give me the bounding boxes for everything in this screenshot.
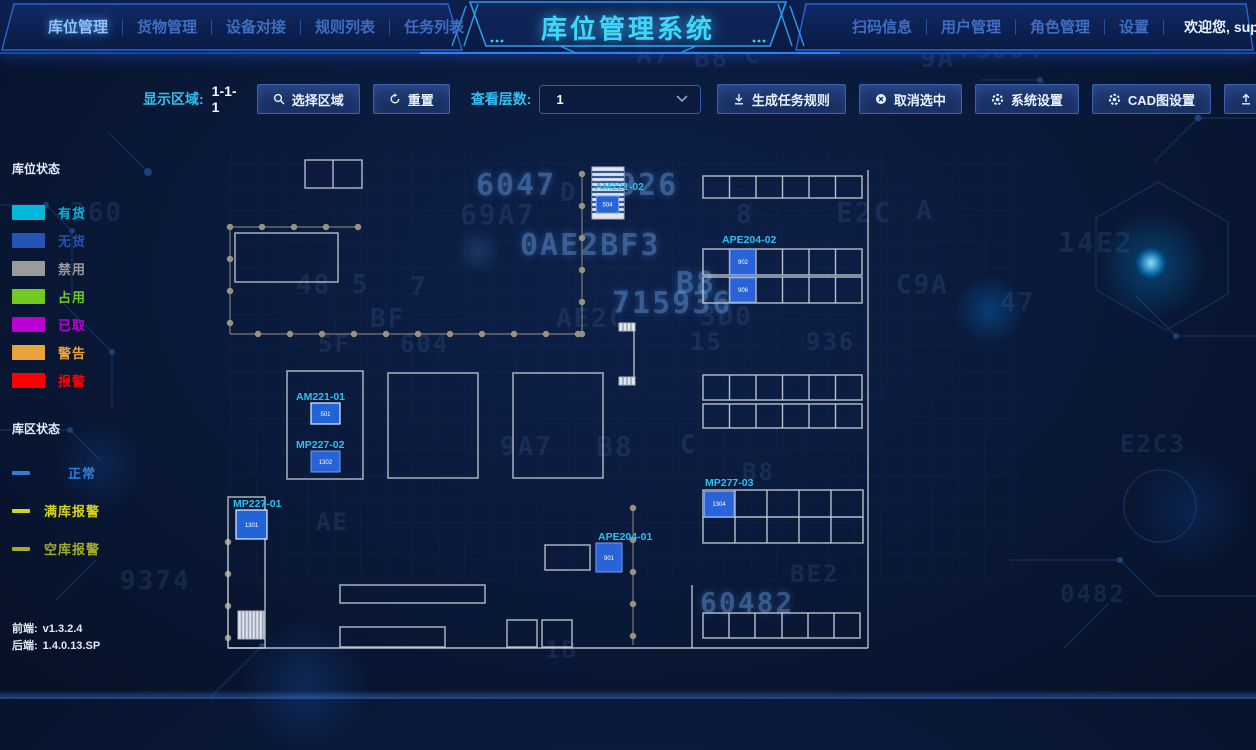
legend-label: 禁用	[58, 259, 86, 278]
right-nav: 扫码信息 用户管理 角色管理 设置 欢迎您, super	[838, 16, 1256, 37]
nav-item-task-list[interactable]: 任务列表	[390, 16, 478, 37]
left-nav: 库位管理 货物管理 设备对接 规则列表 任务列表	[34, 16, 478, 37]
legend-label: 警告	[58, 343, 86, 362]
area-label-am221-01: AM221-01	[296, 391, 345, 403]
nav-item-rule-list[interactable]: 规则列表	[301, 16, 389, 37]
legend-item-full-alarm: 满库报警	[12, 501, 100, 520]
legend-label: 满库报警	[44, 501, 100, 520]
frontend-version-value: v1.3.2.4	[43, 623, 83, 635]
user-menu[interactable]: 欢迎您, super	[1184, 17, 1256, 37]
cancel-selection-button[interactable]: 取消选中	[859, 84, 962, 114]
legend-item-empty-alarm: 空库报警	[12, 539, 100, 558]
slot-cell-number: 1304	[712, 502, 726, 508]
nav-item-device-link[interactable]: 设备对接	[212, 16, 300, 37]
generate-task-rule-label: 生成任务规则	[752, 90, 830, 109]
backend-version: 后端:1.4.0.13.SP	[12, 638, 100, 655]
select-region-button[interactable]: 选择区域	[257, 84, 360, 114]
legend-swatch	[12, 373, 45, 388]
conveyor-path	[228, 172, 633, 648]
display-area-value: 1-1-1	[212, 83, 241, 115]
bottom-accent-bar	[0, 690, 1256, 699]
slot-status-title: 库位状态	[12, 160, 100, 177]
area-label-am221-02: AM221-02	[595, 181, 644, 193]
generate-task-rule-button[interactable]: 生成任务规则	[717, 84, 846, 114]
toolbar: 显示区域: 1-1-1 选择区域 重置 查看层数: 1 生成任务规则	[143, 84, 1256, 114]
legend-swatch	[12, 261, 45, 276]
refresh-icon	[389, 93, 401, 105]
legend-swatch	[12, 345, 45, 360]
legend-item-warning: 警告	[12, 343, 100, 362]
area-label-mp227-02: MP227-02	[296, 439, 345, 451]
area-label-mp277-03: MP277-03	[705, 477, 754, 489]
select-region-label: 选择区域	[292, 90, 344, 109]
layer-label: 查看层数:	[471, 89, 532, 109]
top-bar: 库位管理系统 库位管理 货物管理 设备对接 规则列表 任务列表 扫码信息 用户管…	[0, 0, 1256, 54]
system-settings-label: 系统设置	[1011, 90, 1063, 109]
gear-icon	[1108, 93, 1121, 106]
legend-item-stocked: 有货	[12, 203, 100, 222]
legend-swatch	[12, 317, 45, 332]
backend-version-value: 1.4.0.13.SP	[43, 640, 101, 652]
backend-version-label: 后端:	[12, 640, 38, 652]
legend-swatch	[12, 205, 45, 220]
legend-item-alarm: 报警	[12, 371, 100, 390]
cad-settings-button[interactable]: CAD图设置	[1092, 84, 1211, 114]
legend-item-empty: 无货	[12, 231, 100, 250]
layer-select-value: 1	[556, 92, 563, 107]
reset-label: 重置	[408, 90, 434, 109]
legend-item-picked: 已取	[12, 315, 100, 334]
reset-button[interactable]: 重置	[373, 84, 450, 114]
legend-label: 空库报警	[44, 539, 100, 558]
legend-label: 无货	[58, 231, 86, 250]
slot-cell-number: 901	[604, 556, 615, 562]
legend-item-normal: 正常	[12, 463, 100, 482]
slot-cell-number: 906	[738, 288, 749, 294]
legend-swatch	[12, 289, 45, 304]
nav-separator	[1163, 19, 1164, 35]
legend-label: 正常	[68, 463, 96, 482]
nav-item-scan-info[interactable]: 扫码信息	[838, 16, 926, 37]
version-info: 前端:v1.3.2.4 后端:1.4.0.13.SP	[12, 621, 100, 655]
nav-item-user-mgmt[interactable]: 用户管理	[927, 16, 1015, 37]
area-status-title: 库区状态	[12, 420, 100, 437]
legend-panel: 库位状态 有货 无货 禁用 占用 已取 警告 报警 库区状态 正常 满库报警	[12, 160, 100, 577]
legend-label: 已取	[58, 315, 86, 334]
upload-icon	[1240, 93, 1252, 105]
nav-item-settings[interactable]: 设置	[1105, 16, 1163, 37]
area-status-legend: 库区状态 正常 满库报警 空库报警	[12, 420, 100, 558]
legend-label: 有货	[58, 203, 86, 222]
frontend-version: 前端:v1.3.2.4	[12, 621, 100, 638]
display-area-label: 显示区域:	[143, 89, 204, 109]
search-icon	[273, 93, 285, 105]
stairs-fixture	[238, 167, 635, 639]
nav-item-storage-mgmt[interactable]: 库位管理	[34, 16, 122, 37]
slot-cell-number: 504	[602, 203, 613, 209]
area-label-ape204-01: APE204-01	[598, 531, 652, 543]
legend-item-occupied: 占用	[12, 287, 100, 306]
gear-icon	[991, 93, 1004, 106]
legend-item-disabled: 禁用	[12, 259, 100, 278]
cancel-icon	[875, 93, 887, 105]
slot-cell-number: 1302	[319, 460, 333, 466]
slot-cell-number: 902	[738, 260, 749, 266]
legend-dash	[12, 471, 30, 475]
system-settings-button[interactable]: 系统设置	[975, 84, 1079, 114]
frontend-version-label: 前端:	[12, 623, 38, 635]
legend-dash	[12, 547, 30, 551]
area-label-ape204-02: APE204-02	[722, 234, 776, 246]
nav-item-goods-mgmt[interactable]: 货物管理	[123, 16, 211, 37]
nav-item-role-mgmt[interactable]: 角色管理	[1016, 16, 1104, 37]
download-icon	[733, 93, 745, 105]
legend-label: 报警	[58, 371, 86, 390]
welcome-text: 欢迎您, super	[1184, 17, 1256, 37]
chevron-down-icon	[676, 95, 688, 103]
legend-label: 占用	[58, 287, 86, 306]
cancel-selection-label: 取消选中	[894, 90, 946, 109]
upload-file-button[interactable]: 上传文件	[1224, 84, 1256, 114]
area-label-mp227-01: MP227-01	[233, 498, 282, 510]
floorplan-canvas[interactable]: 504 902 906 501 1302 1301 901 1304 AM221…	[224, 150, 876, 655]
slot-cell-number: 1301	[245, 523, 259, 529]
cad-settings-label: CAD图设置	[1128, 90, 1195, 109]
legend-swatch	[12, 233, 45, 248]
legend-dash	[12, 509, 30, 513]
layer-select[interactable]: 1	[539, 85, 700, 114]
slot-cell-number: 501	[320, 412, 331, 418]
